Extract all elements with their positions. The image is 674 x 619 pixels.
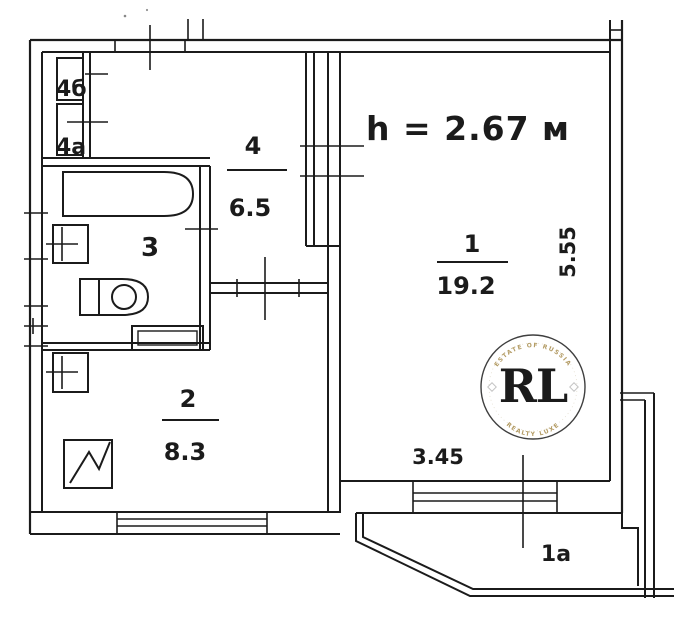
cabinet bbox=[132, 326, 203, 350]
room-1-area: 19.2 bbox=[436, 272, 495, 300]
dimension-width-label: 3.45 bbox=[412, 445, 464, 469]
stove bbox=[64, 440, 112, 488]
floor-plan-drawing: 1 19.2 2 8.3 3 4 6.5 4б 4a 1a 3.45 5.55 … bbox=[0, 0, 674, 619]
floor-plan: 1 19.2 2 8.3 3 4 6.5 4б 4a 1a 3.45 5.55 … bbox=[0, 0, 674, 619]
closet-b-label: 4б bbox=[56, 77, 87, 102]
closet-a-label: 4a bbox=[56, 135, 86, 160]
watermark-initials: RL bbox=[499, 359, 568, 413]
kitchen-sink bbox=[46, 353, 88, 392]
scan-specks bbox=[124, 9, 148, 17]
bathroom-sink bbox=[46, 225, 88, 263]
watermark-stamp: RL ESTATE OF RUSSIA REALTY LUXE bbox=[481, 335, 585, 439]
room1-window bbox=[340, 481, 610, 513]
room-2-area: 8.3 bbox=[164, 438, 207, 466]
toilet bbox=[80, 279, 148, 315]
room-4-area: 6.5 bbox=[229, 194, 272, 222]
outer-walls bbox=[30, 19, 622, 534]
room-1-number: 1 bbox=[464, 230, 481, 258]
room-3-number: 3 bbox=[141, 233, 159, 263]
room-2-number: 2 bbox=[180, 385, 197, 413]
balcony-label: 1a bbox=[541, 542, 571, 567]
ceiling-height-note: h = 2.67 м bbox=[366, 109, 570, 148]
room-4-number: 4 bbox=[245, 132, 262, 160]
dimension-depth-label: 5.55 bbox=[556, 226, 580, 278]
bathtub bbox=[63, 172, 193, 216]
kitchen-window bbox=[30, 512, 340, 534]
